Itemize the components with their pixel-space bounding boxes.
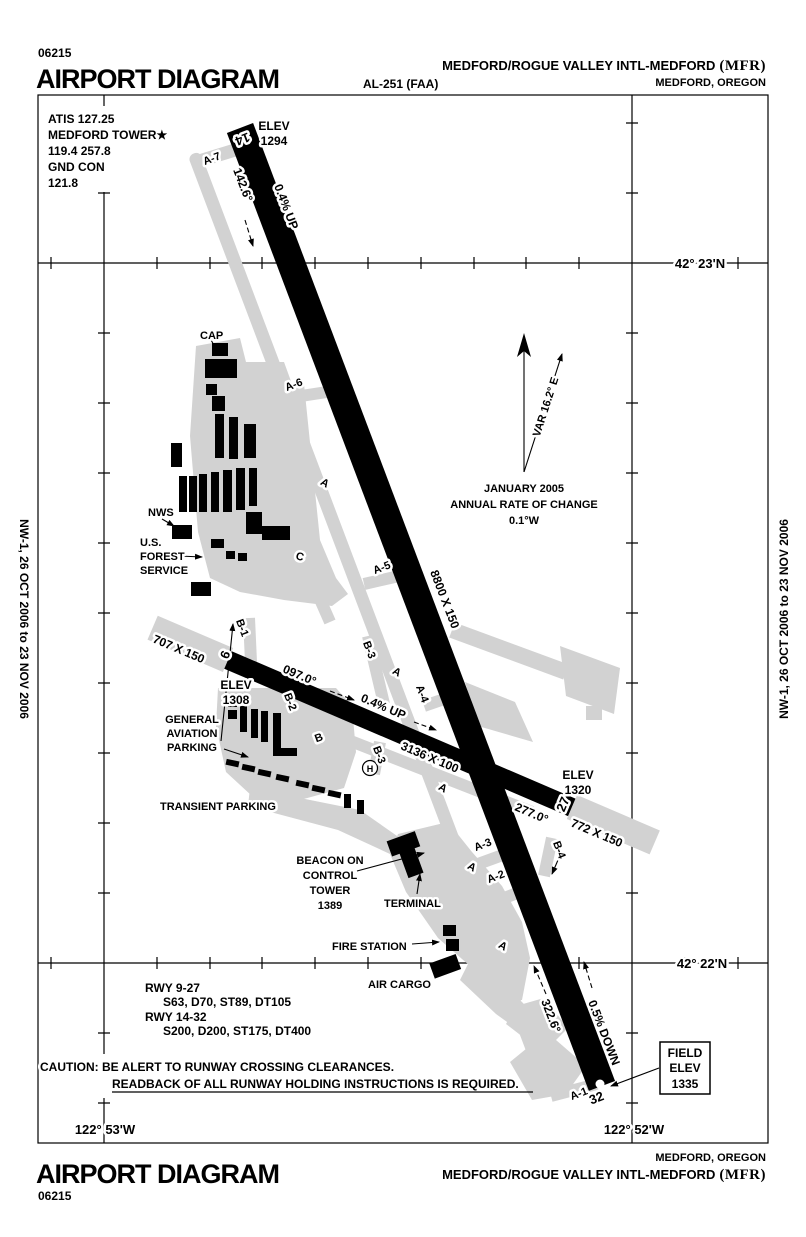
page-title: AIRPORT DIAGRAM [36,64,279,94]
elev-9-value: 1308 [223,693,250,707]
apron-east-pad [560,646,620,714]
airport-diagram-canvas: 06215 AIRPORT DIAGRAM AL-251 (FAA) MEDFO… [0,0,806,1237]
runway32-end-dot [596,1080,605,1089]
building [211,472,219,512]
forest-service-building [191,582,211,596]
building [205,359,237,378]
caution-line2: READBACK OF ALL RUNWAY HOLDING INSTRUCTI… [112,1077,519,1091]
ga-parking-line2: AVIATION [167,728,218,740]
page-title-bottom: AIRPORT DIAGRAM [36,1159,279,1189]
cap-label: CAP [200,330,223,342]
parking-row [328,790,342,799]
nws-leader [162,519,174,526]
building [238,553,247,561]
air-cargo-building [429,954,461,979]
terminal-label: TERMINAL [384,898,441,910]
building [228,710,237,719]
parking-row [357,800,364,814]
atis-frequency: ATIS 127.25 [48,112,115,126]
elev-9-label: ELEV [220,678,251,692]
building [199,474,207,512]
fire-station-label: FIRE STATION [332,941,407,953]
forest-service-line3: SERVICE [140,565,188,577]
building [273,748,297,756]
fire-station-building [443,925,456,936]
building [244,424,256,458]
building [189,476,197,512]
airport-name-top: MEDFORD/ROGUE VALLEY INTL-MEDFORD(MFR) [442,58,766,74]
ga-parking-line1: GENERAL [165,714,219,726]
margin-note-left: NW-1, 26 OCT 2006 to 23 NOV 2006 [17,519,31,719]
caution-line1: CAUTION: BE ALERT TO RUNWAY CROSSING CLE… [40,1060,394,1074]
building [251,709,258,738]
field-elev-line1: FIELD [668,1046,703,1060]
field-elevation-box: FIELD ELEV 1335 [660,1042,710,1094]
air-cargo-label: AIR CARGO [368,979,431,991]
airport-name-bottom: MEDFORD/ROGUE VALLEY INTL-MEDFORD(MFR) [442,1167,766,1183]
forest-service-line2: FOREST [140,551,185,563]
fire-station-building [446,939,459,951]
variation-rate-line2: 0.1°W [509,515,540,527]
building [261,711,268,742]
fire-station-leader [412,942,439,944]
city-state-bottom: MEDFORD, OREGON [655,1152,766,1164]
margin-note-right: NW-1, 26 OCT 2006 to 23 NOV 2006 [777,519,791,719]
variation-label: VAR 16.2° E [531,376,561,438]
parking-row [344,794,351,808]
variation-date: JANUARY 2005 [484,483,564,495]
beacon-line2: CONTROL [303,870,358,882]
longitude-label-right: 122° 52'W [604,1122,665,1137]
building [179,476,187,512]
latitude-label-bottom: 42° 22'N [677,956,727,971]
building [211,539,224,548]
beacon-line3: TOWER [310,885,351,897]
field-elev-leader [611,1068,659,1086]
taxiway-connector-b1 [249,618,251,662]
ground-control-name: GND CON [48,160,105,174]
apron-east-tab [586,706,602,720]
elev-27-label: ELEV [562,768,593,782]
building [226,551,235,559]
runway-data-line2: S63, D70, ST89, DT105 [163,995,291,1009]
nws-label: NWS [148,507,174,519]
elev-14-value: 1294 [261,134,288,148]
tower-name: MEDFORD TOWER★ [48,128,167,142]
taxiway-label-a3: A-3 [472,836,493,854]
variation-rate-line1: ANNUAL RATE OF CHANGE [450,499,597,511]
city-state-top: MEDFORD, OREGON [655,77,766,89]
slope-05down-arrow [584,962,592,988]
building [229,417,238,459]
forest-service-line1: U.S. [140,537,161,549]
building [215,414,224,458]
elev-27-value: 1320 [565,783,592,797]
building [171,443,182,467]
field-elev-line3: 1335 [672,1077,699,1091]
apron-transient [248,788,400,854]
building [262,526,290,540]
tower-frequencies: 119.4 257.8 [48,144,111,158]
ground-control-frequency: 121.8 [48,176,78,190]
building [246,512,262,534]
nws-building [172,525,192,539]
beacon-line4: 1389 [318,900,342,912]
elev-14-label: ELEV [258,119,289,133]
al-number: AL-251 (FAA) [363,77,438,91]
longitude-label-left: 122° 53'W [75,1122,136,1137]
helipad-label: H [367,764,374,774]
building [223,470,232,512]
latitude-label-top: 42° 23'N [675,256,725,271]
transient-parking-label: TRANSIENT PARKING [160,801,276,813]
chart-id-bottom: 06215 [38,1189,72,1203]
heading-142-arrow [245,220,253,246]
building [273,713,281,753]
ga-parking-line3: PARKING [167,742,217,754]
building [249,468,257,506]
taxiway-stub-east [452,630,566,672]
building [240,706,247,732]
beacon-line1: BEACON ON [296,855,363,867]
runway-data-block: RWY 9-27 S63, D70, ST89, DT105 RWY 14-32… [145,981,311,1038]
runway-data-line1: RWY 9-27 [145,981,200,995]
runway-data-line3: RWY 14-32 [145,1010,207,1024]
building [206,384,217,395]
chart-id-top: 06215 [38,46,72,60]
building [212,396,225,411]
runway-data-line4: S200, D200, ST175, DT400 [163,1024,311,1038]
airport-diagram-page: 06215 AIRPORT DIAGRAM AL-251 (FAA) MEDFO… [0,0,806,1237]
field-elev-line2: ELEV [669,1061,700,1075]
building [236,468,245,510]
